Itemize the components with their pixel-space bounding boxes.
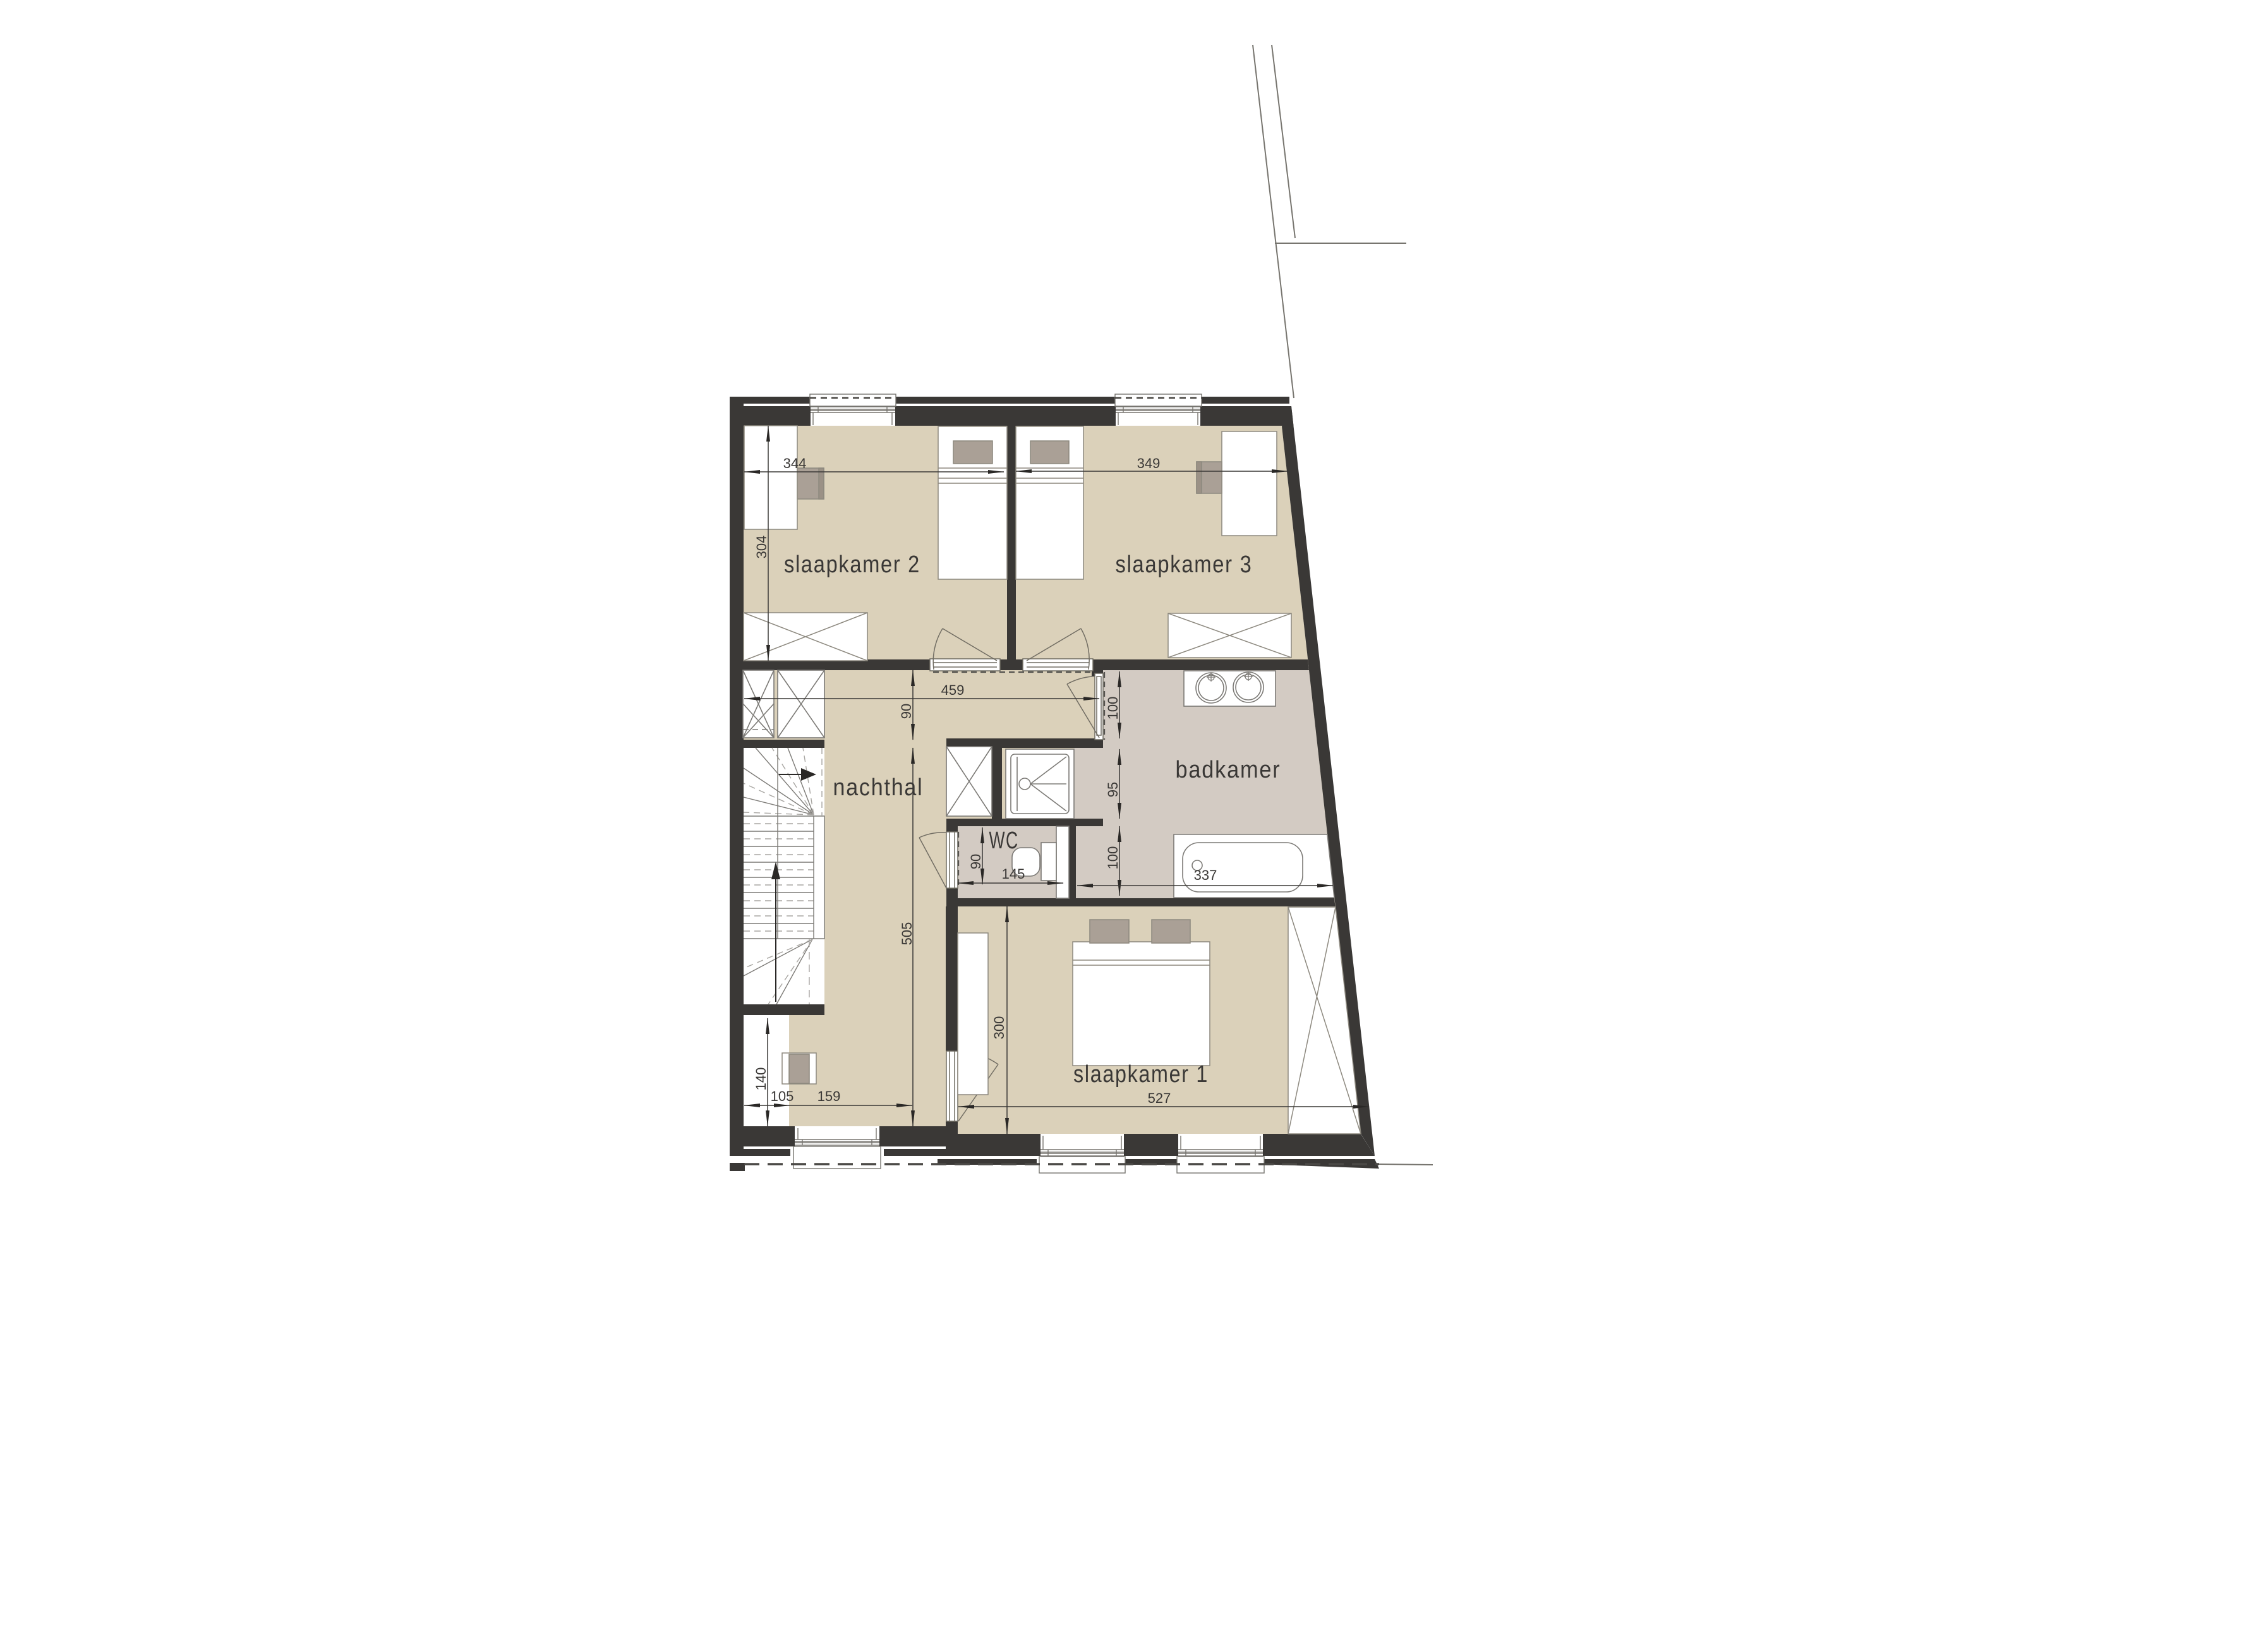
svg-text:304: 304 (754, 536, 769, 559)
svg-text:100: 100 (1105, 846, 1121, 870)
svg-text:100: 100 (1105, 697, 1121, 720)
svg-text:slaapkamer 2: slaapkamer 2 (784, 551, 920, 578)
svg-text:badkamer: badkamer (1176, 757, 1281, 783)
svg-text:slaapkamer 3: slaapkamer 3 (1116, 551, 1253, 578)
svg-text:95: 95 (1105, 782, 1121, 797)
svg-text:105: 105 (771, 1088, 794, 1104)
svg-text:527: 527 (1148, 1090, 1171, 1106)
svg-text:WC: WC (989, 827, 1019, 854)
svg-text:349: 349 (1137, 455, 1161, 471)
svg-text:90: 90 (898, 704, 914, 719)
svg-text:344: 344 (783, 455, 807, 471)
svg-text:337: 337 (1194, 867, 1217, 883)
svg-text:140: 140 (753, 1068, 769, 1091)
svg-text:slaapkamer 1: slaapkamer 1 (1073, 1061, 1209, 1088)
svg-text:459: 459 (941, 682, 965, 698)
svg-text:159: 159 (817, 1088, 841, 1104)
svg-text:145: 145 (1002, 866, 1025, 882)
svg-text:nachthal: nachthal (833, 774, 924, 801)
svg-text:90: 90 (968, 854, 984, 869)
svg-text:505: 505 (899, 922, 915, 946)
svg-text:300: 300 (991, 1016, 1007, 1040)
